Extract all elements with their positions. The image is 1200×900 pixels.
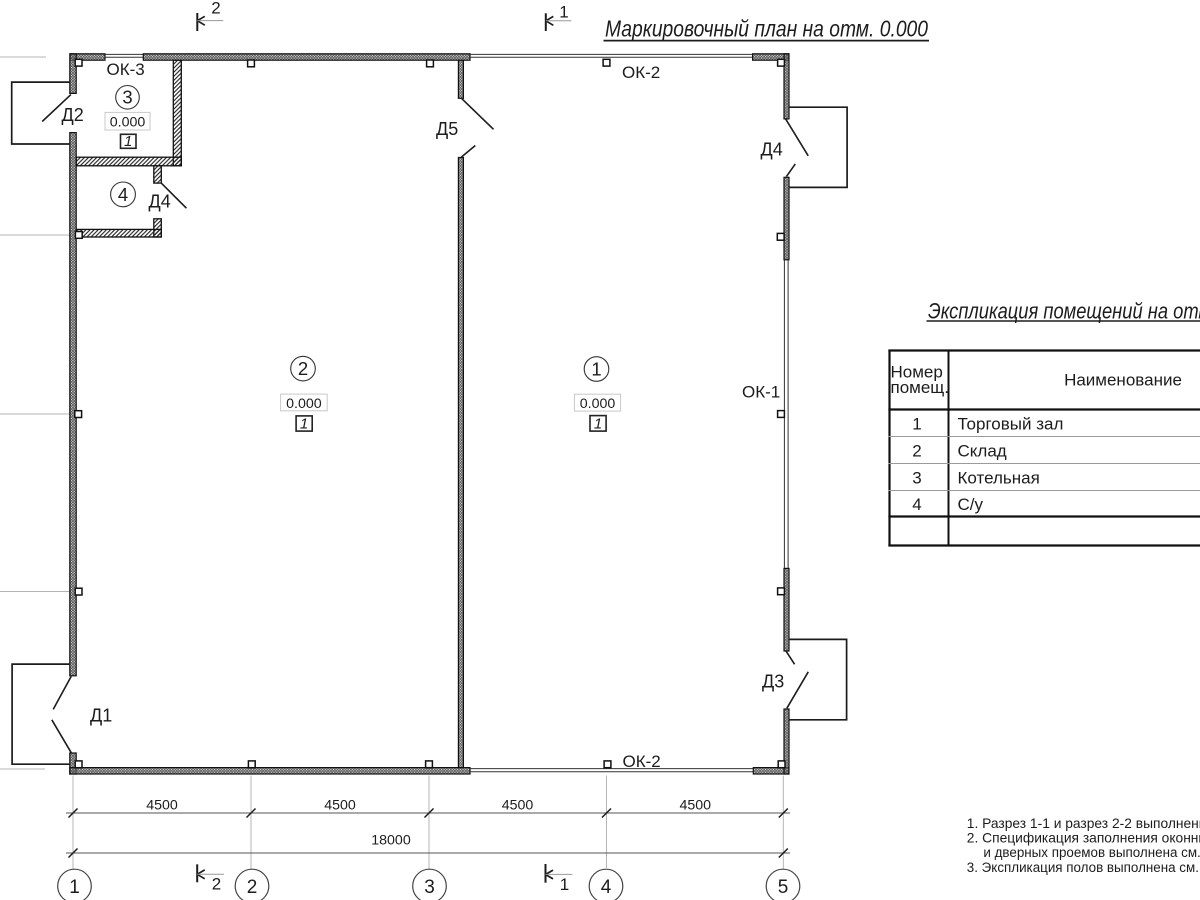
svg-text:1: 1 xyxy=(559,3,568,22)
svg-text:ОК-3: ОК-3 xyxy=(107,60,145,79)
svg-text:4500: 4500 xyxy=(680,798,712,814)
svg-text:Д2: Д2 xyxy=(62,105,84,125)
svg-text:3. Экспликация полов выполнена: 3. Экспликация полов выполнена см. лист xyxy=(967,860,1200,875)
svg-text:1: 1 xyxy=(594,416,602,433)
svg-text:ОК-1: ОК-1 xyxy=(742,383,780,402)
svg-text:2. Спецификация заполнения око: 2. Спецификация заполнения оконных xyxy=(967,831,1200,846)
svg-text:1: 1 xyxy=(560,875,569,894)
svg-text:0.000: 0.000 xyxy=(580,396,616,412)
svg-text:4500: 4500 xyxy=(502,798,534,814)
svg-text:3: 3 xyxy=(424,877,435,898)
svg-text:4500: 4500 xyxy=(146,798,178,814)
svg-text:Д1: Д1 xyxy=(90,706,112,726)
svg-text:Маркировочный план на отм. 0.0: Маркировочный план на отм. 0.000 xyxy=(605,15,928,41)
svg-text:1: 1 xyxy=(124,133,132,150)
svg-text:4: 4 xyxy=(601,877,612,898)
svg-text:ОК-2: ОК-2 xyxy=(622,63,660,82)
svg-text:Торговый зал: Торговый зал xyxy=(958,415,1064,434)
svg-text:2: 2 xyxy=(912,442,921,461)
svg-text:2: 2 xyxy=(298,358,308,379)
svg-text:Д3: Д3 xyxy=(762,672,784,692)
svg-text:Склад: Склад xyxy=(958,442,1007,461)
svg-text:18000: 18000 xyxy=(371,833,411,849)
svg-text:2: 2 xyxy=(247,877,258,898)
svg-text:Котельная: Котельная xyxy=(958,469,1040,488)
svg-text:0.000: 0.000 xyxy=(286,396,322,412)
svg-text:4: 4 xyxy=(912,495,921,514)
svg-text:2: 2 xyxy=(212,875,221,894)
svg-text:и дверных проемов выполнена см: и дверных проемов выполнена см. лист xyxy=(983,845,1200,860)
svg-text:Д5: Д5 xyxy=(436,119,458,139)
svg-text:4: 4 xyxy=(118,184,128,205)
svg-text:3: 3 xyxy=(912,469,921,488)
svg-text:помещ.: помещ. xyxy=(891,378,950,397)
svg-text:Д4: Д4 xyxy=(149,192,171,212)
svg-text:2: 2 xyxy=(211,0,220,18)
svg-text:4500: 4500 xyxy=(324,798,356,814)
svg-text:Наименование: Наименование xyxy=(1064,371,1182,390)
svg-text:1. Разрез 1-1 и разрез 2-2 вып: 1. Разрез 1-1 и разрез 2-2 выполнены см. xyxy=(967,816,1200,831)
svg-text:Экспликация помещений на отм.: Экспликация помещений на отм. 0.000 xyxy=(928,298,1200,323)
svg-text:5: 5 xyxy=(778,877,789,898)
svg-text:0.000: 0.000 xyxy=(110,115,146,131)
svg-text:1: 1 xyxy=(912,415,921,434)
svg-text:3: 3 xyxy=(122,87,132,108)
svg-text:1: 1 xyxy=(300,416,308,433)
svg-text:1: 1 xyxy=(69,877,80,898)
svg-text:ОК-2: ОК-2 xyxy=(623,752,661,771)
svg-text:Д4: Д4 xyxy=(761,140,783,160)
svg-text:1: 1 xyxy=(591,358,601,379)
svg-text:С/у: С/у xyxy=(958,495,984,514)
